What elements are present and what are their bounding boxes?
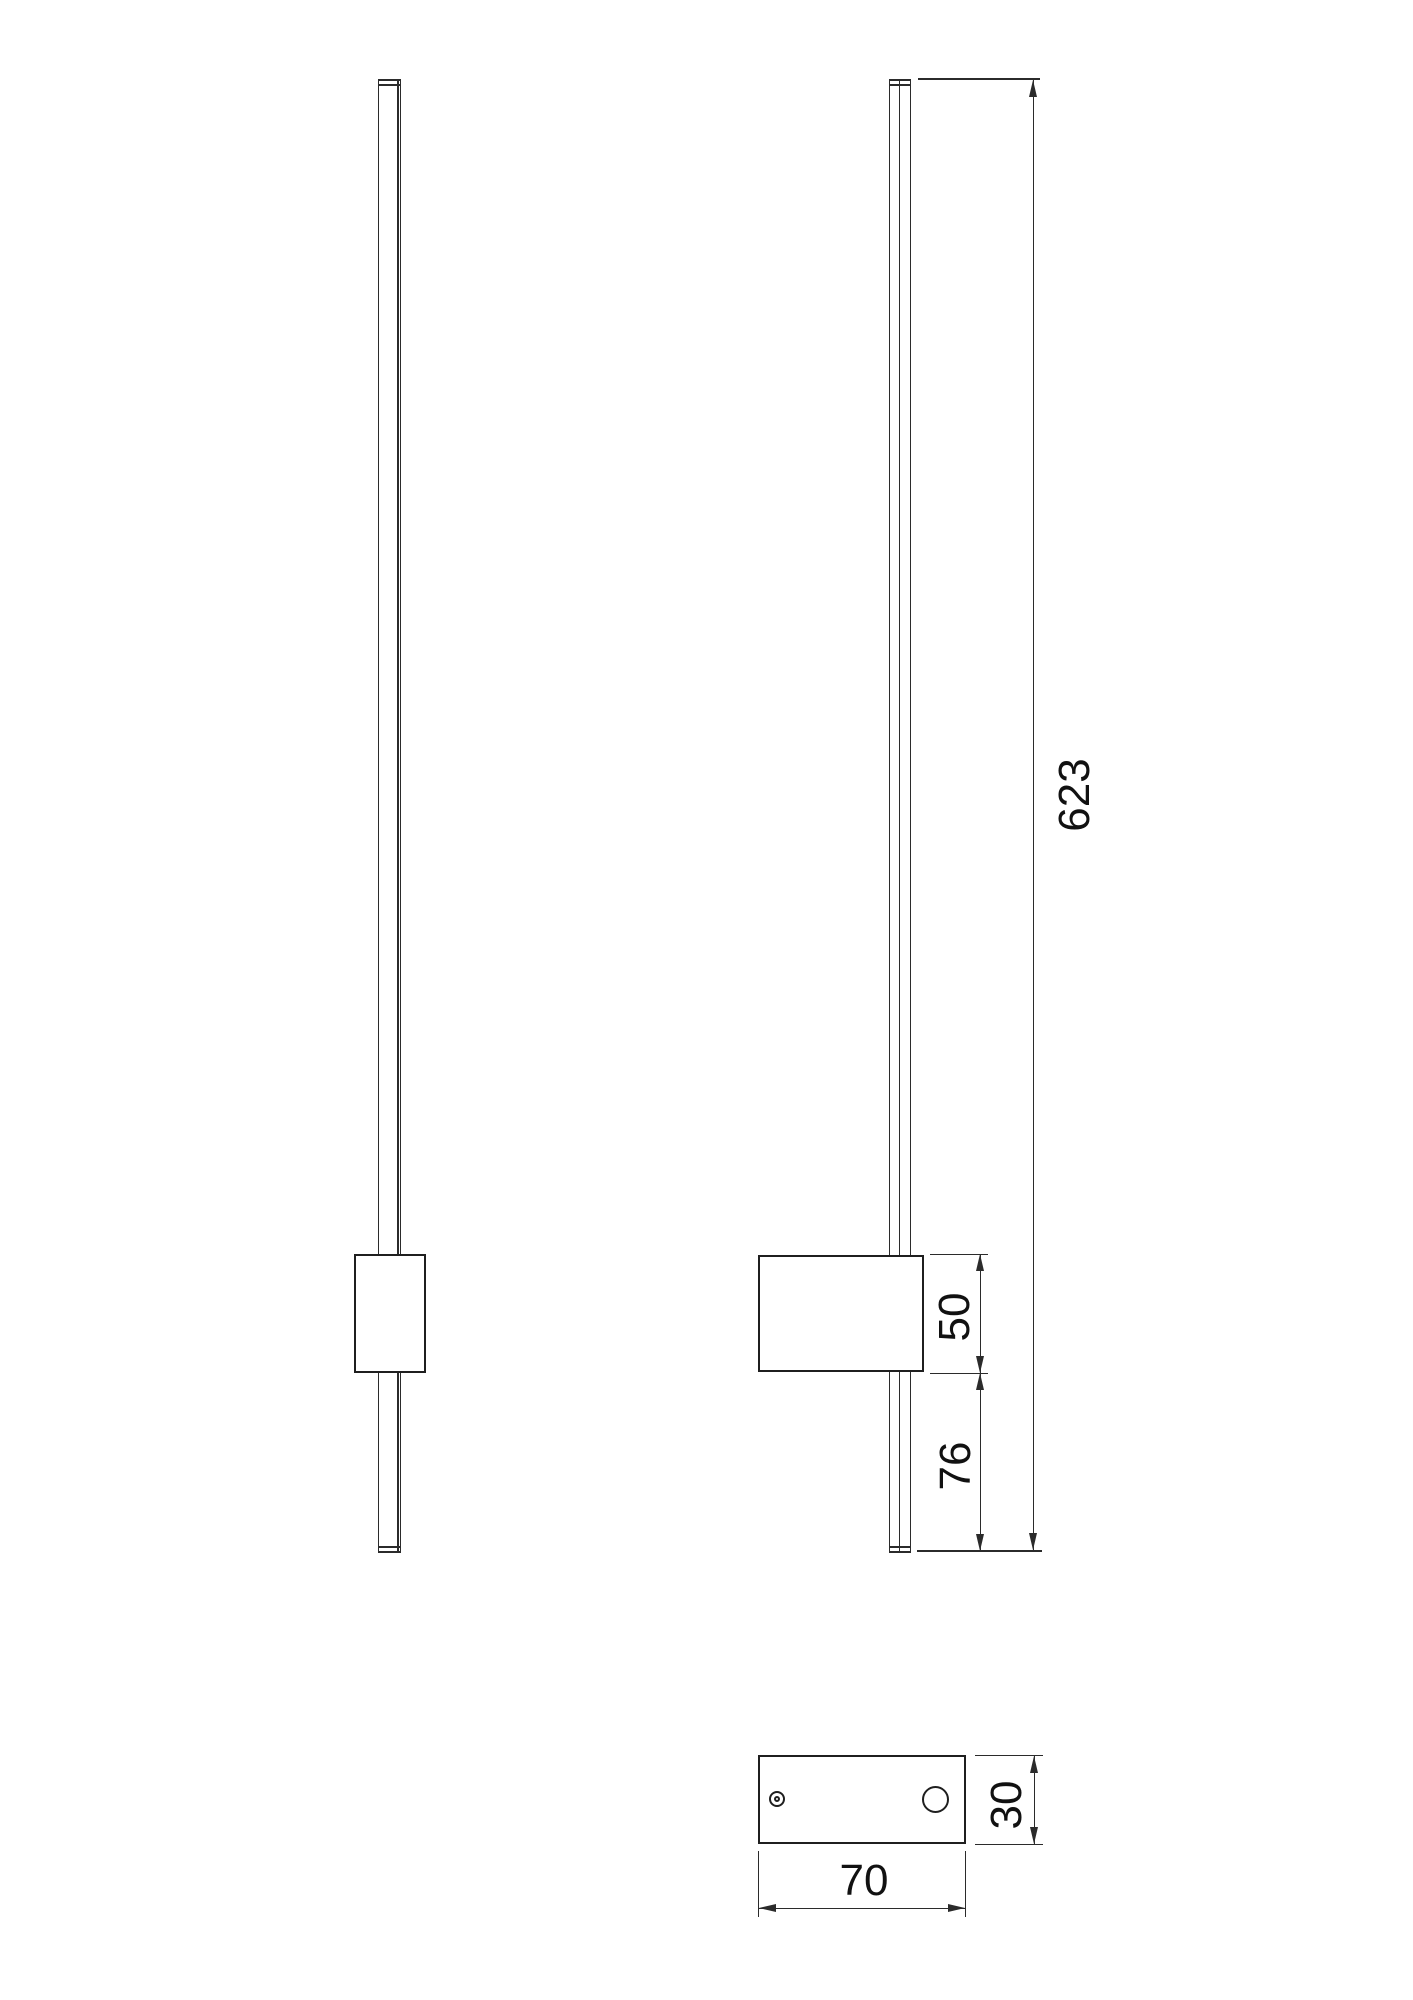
dim-70-arrow-right [948, 1904, 965, 1912]
dim-76-arrow-top [976, 1373, 984, 1390]
dim-70-line [758, 1908, 966, 1910]
dim-30-label: 30 [983, 1735, 1031, 1875]
dim-623-arrow-top [1029, 80, 1037, 97]
dim-76-arrow-bottom [976, 1534, 984, 1551]
front-bar-bottom-cap [378, 1546, 401, 1548]
screw-hole-inner [774, 1796, 780, 1802]
dim-623-line [1033, 79, 1035, 1551]
dim-623-arrow-bottom [1029, 1533, 1037, 1550]
dim-30-arrow-bottom [1030, 1827, 1038, 1844]
front-bar-top-cap [378, 84, 401, 86]
extension-line-bar-top [918, 78, 1040, 80]
dim-76-label: 76 [932, 1396, 980, 1536]
dim-50-label: 50 [931, 1247, 979, 1387]
dim-623-label: 623 [1051, 725, 1099, 865]
dim-30-arrow-top [1030, 1756, 1038, 1773]
side-driver-box [758, 1255, 924, 1372]
cable-hole [922, 1786, 949, 1813]
side-bar-top-cap [889, 84, 911, 86]
dim-70-arrow-left [759, 1904, 776, 1912]
front-driver-box [354, 1254, 426, 1373]
dim-70-label: 70 [794, 1857, 934, 1905]
side-bar-bottom-cap [889, 1546, 911, 1548]
technical-drawing-canvas: 50 76 623 70 30 [0, 0, 1413, 2000]
